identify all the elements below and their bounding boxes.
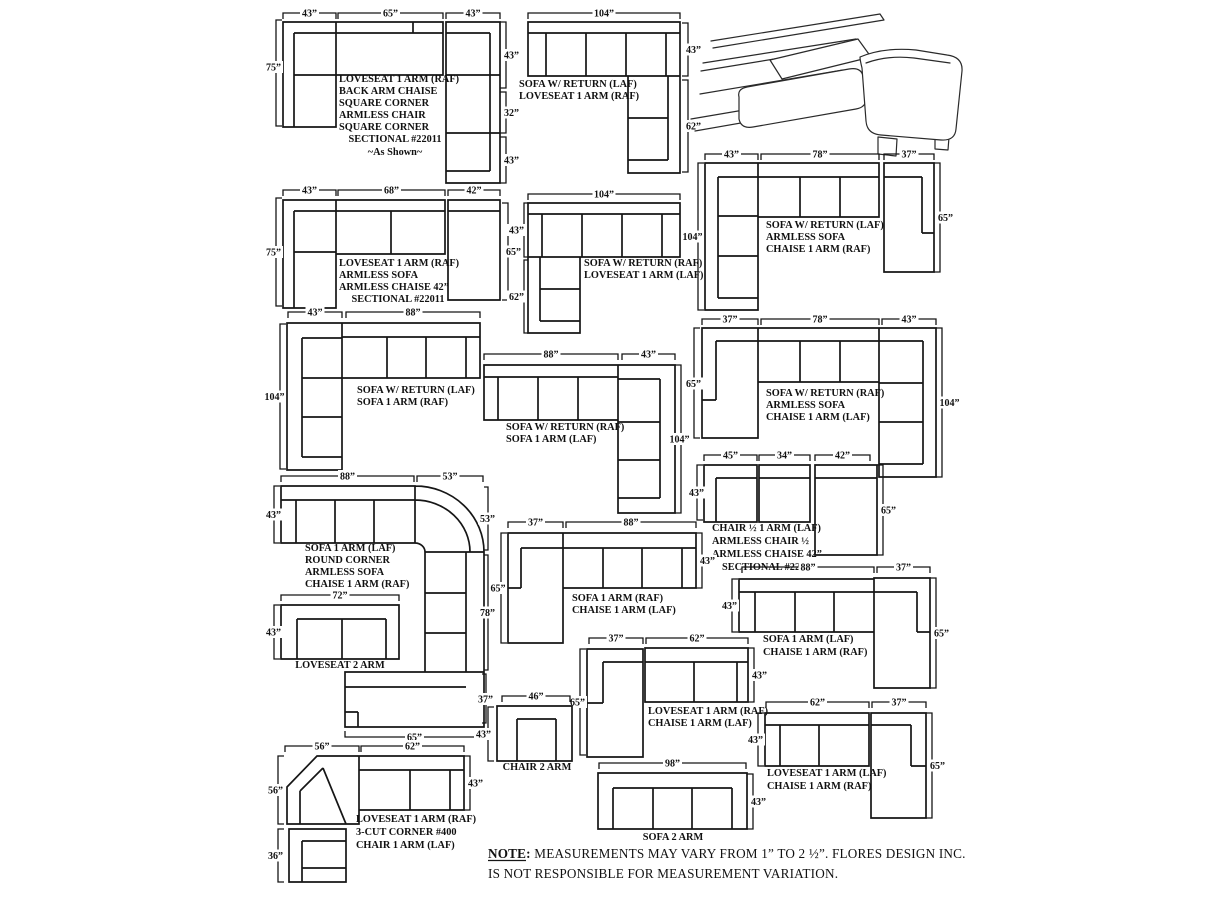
component-label: ARMLESS SOFA — [766, 400, 846, 411]
dim-label: 104” — [683, 232, 703, 243]
component-label: ARMLESS CHAISE 42” — [712, 549, 822, 560]
dim-brackets — [501, 522, 702, 643]
component-label: CHAISE 1 ARM (LAF) — [766, 412, 870, 423]
component-label: SOFA 1 ARM (RAF) — [572, 593, 663, 604]
component-label: CHAISE 1 ARM (LAF) — [572, 605, 676, 616]
dim-label: 43” — [302, 186, 317, 197]
dim-label: 65” — [506, 247, 521, 258]
dim-label: 65” — [930, 761, 945, 772]
note-line-2: IS NOT RESPONSIBLE FOR MEASUREMENT VARIA… — [488, 866, 838, 881]
diagram-loveseat-2-arm: 72” 43” LOVESEAT 2 ARM — [264, 589, 399, 671]
dim-label: 88” — [624, 518, 639, 529]
outline — [598, 773, 747, 829]
dim-label: 42” — [467, 186, 482, 197]
diagram-3-cut-corner-group: 56” 62” 56” 36” 43” LOVESEAT 1 ARM (RAF)… — [266, 740, 485, 882]
dim-label: 36” — [268, 851, 283, 862]
sofa-seat-cushion — [739, 69, 866, 128]
component-label: CHAISE 1 ARM (RAF) — [305, 579, 409, 590]
label-masks — [687, 449, 898, 516]
dim-label: 43” — [509, 226, 524, 237]
dim-label: 43” — [722, 601, 737, 612]
note-label: NOTE: — [488, 846, 531, 861]
component-label: LOVESEAT 2 ARM — [295, 660, 385, 671]
component-label: ARMLESS SOFA — [305, 567, 385, 578]
dim-label: 43” — [751, 797, 766, 808]
dim-label: 88” — [340, 472, 355, 483]
component-label: ROUND CORNER — [305, 555, 391, 566]
dim-label: 104” — [940, 398, 960, 409]
dim-label: 75” — [266, 63, 281, 74]
outline — [765, 713, 926, 818]
dim-label: 88” — [801, 563, 816, 574]
dim-label: 68” — [384, 186, 399, 197]
dim-label: 65” — [491, 584, 506, 595]
component-label: BACK ARM CHAISE — [339, 86, 438, 97]
sofa-illustration — [691, 14, 962, 156]
dim-label: 75” — [266, 248, 281, 259]
component-label: SOFA 1 ARM (LAF) — [305, 543, 395, 554]
dim-label: 46” — [529, 692, 544, 703]
dim-label: 62” — [405, 742, 420, 753]
dim-label: 43” — [641, 350, 656, 361]
diagram-sofa-return-raf-sofa-laf: 88” 43” 104” SOFA W/ RETURN (RAF) SOFA 1… — [484, 348, 691, 513]
component-label: ARMLESS SOFA — [339, 270, 419, 281]
label-masks — [568, 632, 769, 708]
note-text: MEASUREMENTS MAY VARY FROM 1” TO 2 ½”. F… — [531, 846, 966, 861]
component-label: CHAISE 1 ARM (RAF) — [767, 781, 871, 792]
dim-label: 56” — [268, 786, 283, 797]
diagram-sectional-22011-chair-half-group: 45” 34” 42” 43” 65” CHAIR ½ 1 ARM (LAF) … — [687, 449, 898, 573]
component-label: ARMLESS SOFA — [766, 232, 846, 243]
component-label: SECTIONAL #22011 — [349, 134, 442, 145]
dim-label: 37” — [609, 634, 624, 645]
dim-brackets — [758, 702, 932, 818]
dim-label: 43” — [724, 150, 739, 161]
dim-label: 53” — [443, 472, 458, 483]
dim-label: 37” — [478, 695, 493, 706]
dim-label: 43” — [689, 488, 704, 499]
dim-label: 104” — [670, 435, 690, 446]
dim-label: 65” — [686, 379, 701, 390]
label-masks — [593, 7, 704, 132]
diagram-sofa-return-laf-chaise-raf: 43” 78” 37” 104” 65” SOFA W/ RETURN (LAF… — [681, 148, 955, 310]
note-line-1: NOTE: MEASUREMENTS MAY VARY FROM 1” TO 2… — [488, 846, 966, 861]
dim-label: 104” — [594, 190, 614, 201]
dim-label: 62” — [810, 698, 825, 709]
dim-label: 72” — [333, 591, 348, 602]
dim-label: 42” — [835, 451, 850, 462]
dim-brackets — [274, 476, 488, 737]
dim-label: 37” — [902, 150, 917, 161]
spec-sheet-canvas: 43” 65” 43” 75” 43” 32” 43” LOVESEAT 1 A… — [0, 0, 1220, 900]
component-label: SOFA W/ RETURN (RAF) — [506, 422, 624, 433]
dim-label: 43” — [476, 730, 491, 741]
diagram-sofa-return-laf-sofa-raf: 43” 88” 104” SOFA W/ RETURN (LAF) SOFA 1… — [263, 306, 480, 470]
diagram-sofa-return-laf-loveseat-raf: 104” 43” 62” SOFA W/ RETURN (LAF) LOVESE… — [519, 7, 703, 173]
diagram-sectional-22011-as-shown: 43” 65” 43” 75” 43” 32” 43” LOVESEAT 1 A… — [264, 7, 521, 183]
outline — [281, 486, 484, 727]
diagram-loveseat-laf-chaise-raf: 62” 37” 43” 65” LOVESEAT 1 ARM (LAF) CHA… — [746, 696, 947, 818]
label-masks — [264, 470, 497, 743]
component-label: CHAISE 1 ARM (RAF) — [763, 647, 867, 658]
dim-label: 78” — [813, 315, 828, 326]
dim-label: 53” — [480, 514, 495, 525]
dim-label: 43” — [504, 51, 519, 62]
outline — [497, 706, 572, 761]
dim-label: 43” — [902, 315, 917, 326]
component-label: SOFA 2 ARM — [643, 832, 704, 843]
dim-label: 88” — [406, 308, 421, 319]
component-label: CHAISE 1 ARM (RAF) — [766, 244, 870, 255]
component-label: SQUARE CORNER — [339, 98, 430, 109]
dim-label: 43” — [468, 779, 483, 790]
dim-label: 65” — [934, 629, 949, 640]
component-label: LOVESEAT 1 ARM (RAF) — [519, 91, 639, 102]
component-label: SECTIONAL #22011 — [352, 294, 445, 305]
component-label: LOVESEAT 1 ARM (LAF) — [584, 270, 703, 281]
diagram-loveseat-raf-chaise-laf: 37” 62” 65” 43” LOVESEAT 1 ARM (RAF) CHA… — [568, 632, 769, 757]
component-label: LOVESEAT 1 ARM (RAF) — [339, 258, 459, 269]
measurement-note: NOTE: MEASUREMENTS MAY VARY FROM 1” TO 2… — [488, 846, 966, 881]
dim-label: 43” — [700, 556, 715, 567]
diagram-sofa-return-raf-loveseat-laf: 104” 43” 62” SOFA W/ RETURN (RAF) LOVESE… — [507, 188, 703, 333]
component-label: LOVESEAT 1 ARM (RAF) — [339, 74, 459, 85]
dim-label: 32” — [504, 108, 519, 119]
component-label: LOVESEAT 1 ARM (RAF) — [648, 706, 768, 717]
dim-label: 65” — [938, 213, 953, 224]
component-label: LOVESEAT 1 ARM (RAF) — [356, 814, 476, 825]
label-masks — [746, 696, 947, 772]
component-label: CHAIR ½ 1 ARM (LAF) — [712, 523, 821, 534]
component-label: SOFA 1 ARM (RAF) — [357, 397, 448, 408]
label-masks — [507, 188, 616, 303]
dim-label: 78” — [480, 608, 495, 619]
dim-label: 37” — [528, 518, 543, 529]
dim-label: 65” — [881, 506, 896, 517]
dim-label: 43” — [266, 628, 281, 639]
component-label: CHAISE 1 ARM (LAF) — [648, 718, 752, 729]
dim-label: 43” — [752, 671, 767, 682]
diagram-sectional-22011-armless-chaise: 43” 68” 42” 75” 65” LOVESEAT 1 ARM (RAF)… — [264, 184, 523, 308]
component-label: SOFA 1 ARM (LAF) — [763, 634, 853, 645]
dim-label: 43” — [748, 735, 763, 746]
component-label: SOFA W/ RETURN (RAF) — [766, 388, 884, 399]
diagram-round-corner-group: 88” 53” 43” 53” 78” 37” 65” SOFA 1 ARM (… — [264, 470, 497, 744]
dim-label: 62” — [509, 292, 524, 303]
component-label: CHAIR 2 ARM — [503, 762, 572, 773]
dim-label: 37” — [896, 563, 911, 574]
component-label: SOFA W/ RETURN (RAF) — [584, 258, 702, 269]
component-label: CHAIR 1 ARM (LAF) — [356, 840, 455, 851]
dim-label: 56” — [315, 742, 330, 753]
dim-label: 104” — [265, 392, 285, 403]
component-label: ARMLESS CHAIR — [339, 110, 426, 121]
diagram-sofa-raf-chaise-laf: 37” 88” 65” 43” SOFA 1 ARM (RAF) CHAISE … — [489, 516, 717, 643]
component-label: LOVESEAT 1 ARM (LAF) — [767, 768, 886, 779]
dim-label: 65” — [383, 9, 398, 20]
component-label: SOFA W/ RETURN (LAF) — [519, 79, 637, 90]
component-label: SOFA 1 ARM (LAF) — [506, 434, 596, 445]
component-label: 3-CUT CORNER #400 — [356, 827, 457, 838]
diagram-sofa-2-arm: 98” 43” SOFA 2 ARM — [598, 757, 768, 843]
dim-label: 34” — [777, 451, 792, 462]
outline — [587, 648, 748, 757]
dim-label: 88” — [544, 350, 559, 361]
component-label: SOFA W/ RETURN (LAF) — [766, 220, 884, 231]
dim-label: 43” — [686, 45, 701, 56]
dim-label: 98” — [665, 759, 680, 770]
dim-label: 45” — [723, 451, 738, 462]
outline — [281, 605, 399, 659]
dim-label: 62” — [690, 634, 705, 645]
component-label: ARMLESS CHAIR ½ — [712, 536, 809, 547]
component-label: SQUARE CORNER — [339, 122, 430, 133]
dim-label: 43” — [302, 9, 317, 20]
dim-label: 43” — [466, 9, 481, 20]
dim-label: 37” — [892, 698, 907, 709]
component-label: ARMLESS CHAISE 42” — [339, 282, 449, 293]
dim-brackets — [580, 638, 754, 755]
dim-label: 37” — [723, 315, 738, 326]
dim-label: 78” — [813, 150, 828, 161]
component-label: SOFA W/ RETURN (LAF) — [357, 385, 475, 396]
dim-label: 104” — [594, 9, 614, 20]
dim-label: 43” — [504, 156, 519, 167]
component-label: ~As Shown~ — [368, 147, 423, 158]
dim-label: 43” — [266, 510, 281, 521]
spec-sheet: 43” 65” 43” 75” 43” 32” 43” LOVESEAT 1 A… — [0, 0, 1220, 900]
outline — [508, 533, 696, 643]
dim-label: 43” — [308, 308, 323, 319]
